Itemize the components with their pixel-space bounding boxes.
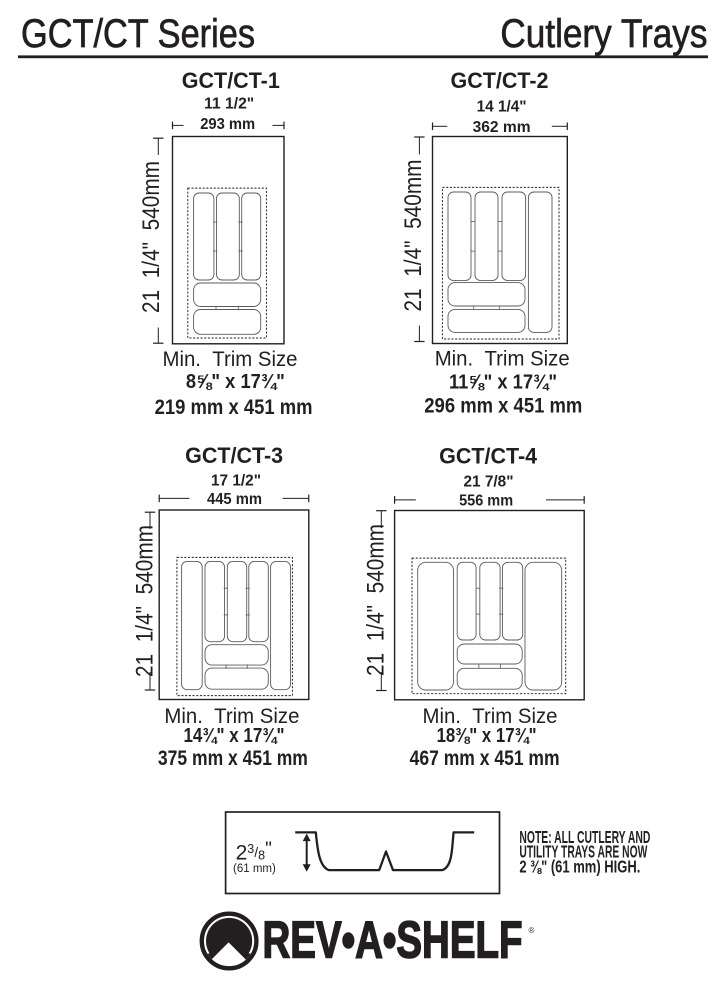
svg-text:11⅝" x 17¾": 11⅝" x 17¾" <box>449 371 557 393</box>
svg-text:GCT/CT-2: GCT/CT-2 <box>451 68 549 93</box>
svg-text:21 1/4" 540mm: 21 1/4" 540mm <box>138 161 165 313</box>
svg-text:296 mm x 451 mm: 296 mm x 451 mm <box>424 395 582 418</box>
svg-text:8⅝" x 17¾": 8⅝" x 17¾" <box>186 371 285 393</box>
svg-text:2 ⅜" (61 mm) HIGH.: 2 ⅜" (61 mm) HIGH. <box>519 857 640 877</box>
svg-text:GCT/CT-4: GCT/CT-4 <box>439 444 538 469</box>
svg-text:17 1/2": 17 1/2" <box>211 473 261 490</box>
svg-text:(61 mm): (61 mm) <box>233 863 276 875</box>
svg-text:18⅜" x 17¾": 18⅜" x 17¾" <box>437 725 537 747</box>
svg-text:14¾" x 17¾": 14¾" x 17¾" <box>184 725 285 747</box>
svg-text:556 mm: 556 mm <box>459 492 513 509</box>
svg-text:GCT/CT-3: GCT/CT-3 <box>185 443 283 468</box>
svg-text:362 mm: 362 mm <box>473 119 531 136</box>
svg-text:GCT/CT-1: GCT/CT-1 <box>182 68 280 93</box>
svg-text:21 1/4" 540mm: 21 1/4" 540mm <box>362 524 389 676</box>
svg-text:375 mm x 451 mm: 375 mm x 451 mm <box>158 747 308 770</box>
svg-text:GCT/CT Series: GCT/CT Series <box>21 12 255 56</box>
svg-text:445 mm: 445 mm <box>207 491 262 508</box>
svg-text:REV•A•SHELF: REV•A•SHELF <box>263 911 523 969</box>
svg-text:21 1/4" 540mm: 21 1/4" 540mm <box>131 525 158 677</box>
svg-text:Min. Trim Size: Min. Trim Size <box>435 347 570 371</box>
svg-text:467 mm x 451 mm: 467 mm x 451 mm <box>410 747 560 770</box>
svg-text:21 1/4" 540mm: 21 1/4" 540mm <box>400 160 427 312</box>
svg-text:Cutlery Trays: Cutlery Trays <box>500 12 707 56</box>
svg-text:Min. Trim Size: Min. Trim Size <box>163 347 298 371</box>
svg-text:®: ® <box>529 926 535 935</box>
svg-text:21 7/8": 21 7/8" <box>464 473 514 490</box>
svg-text:293 mm: 293 mm <box>200 116 255 133</box>
svg-text:14 1/4": 14 1/4" <box>477 98 527 115</box>
svg-text:11 1/2": 11 1/2" <box>204 96 254 113</box>
svg-text:219 mm x 451 mm: 219 mm x 451 mm <box>155 396 313 419</box>
